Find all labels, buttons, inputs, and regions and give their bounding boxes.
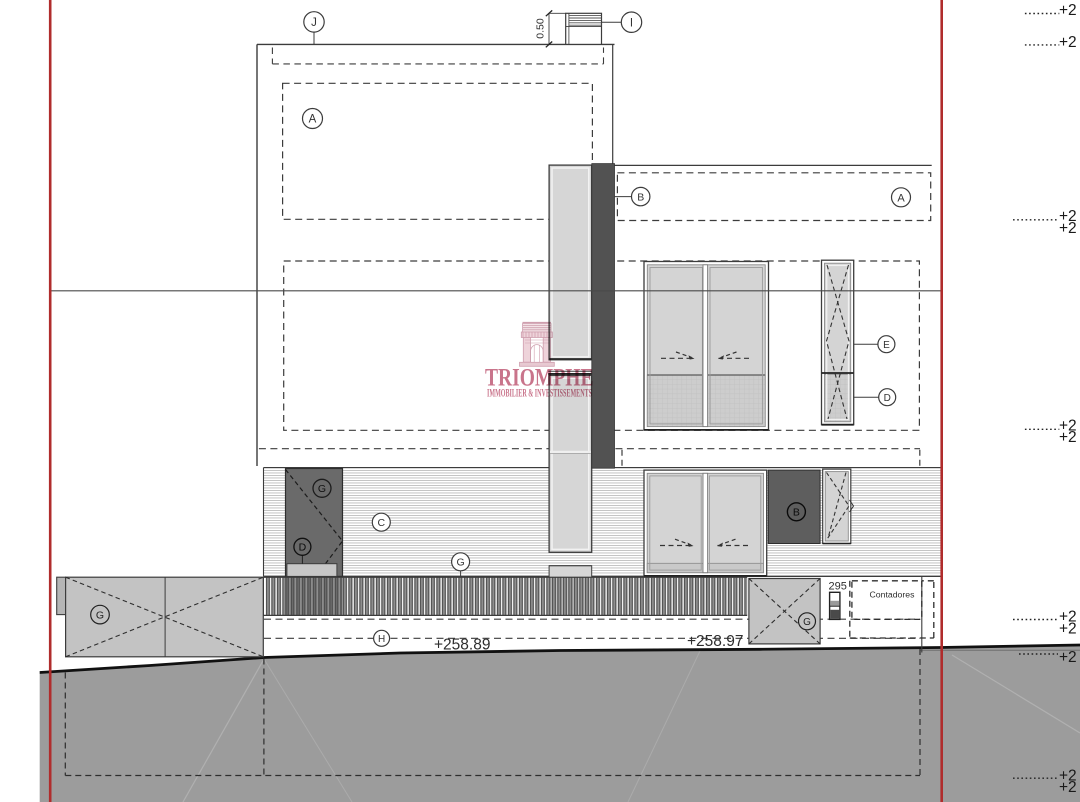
svg-text:+258.89: +258.89 (434, 637, 490, 654)
svg-text:+2: +2 (1059, 34, 1077, 51)
svg-text:295: 295 (829, 581, 847, 593)
svg-text:Contadores: Contadores (870, 590, 916, 600)
svg-text:+258.97: +258.97 (687, 633, 743, 650)
svg-text:C: C (378, 517, 386, 529)
svg-text:H: H (378, 634, 385, 645)
svg-text:+2: +2 (1059, 220, 1077, 237)
svg-text:E: E (883, 340, 890, 351)
svg-text:+2: +2 (1059, 649, 1077, 666)
svg-text:G: G (457, 557, 465, 569)
svg-text:D: D (884, 393, 891, 404)
svg-text:IMMOBILIER & INVESTISSEMENTS: IMMOBILIER & INVESTISSEMENTS (487, 387, 592, 399)
svg-text:+2: +2 (1059, 621, 1077, 638)
svg-text:G: G (96, 610, 104, 622)
svg-text:D: D (299, 542, 307, 554)
svg-text:G: G (803, 617, 811, 628)
svg-text:B: B (793, 507, 800, 519)
svg-text:J: J (311, 17, 317, 29)
svg-text:I: I (630, 17, 633, 29)
svg-text:G: G (318, 483, 326, 495)
svg-text:0.50: 0.50 (535, 18, 547, 39)
svg-text:A: A (309, 114, 317, 126)
svg-text:A: A (897, 192, 905, 204)
svg-text:B: B (637, 192, 644, 204)
svg-text:+2: +2 (1059, 429, 1077, 446)
svg-text:+2: +2 (1059, 779, 1077, 796)
svg-text:+2: +2 (1059, 2, 1077, 19)
